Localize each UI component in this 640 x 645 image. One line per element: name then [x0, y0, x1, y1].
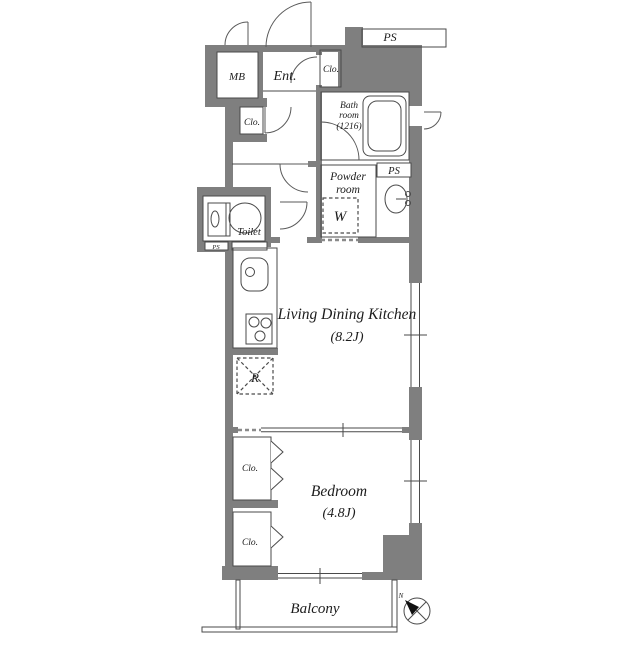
toilet-label: Toilet — [237, 227, 262, 238]
bedroom-label: Bedroom — [311, 483, 367, 500]
wall-bedroom-left-a — [225, 433, 233, 502]
balcony-right-rail — [392, 580, 397, 627]
floorplan-drawing: N MB Ent. Clo. PS Bath room (1216) Clo. … — [0, 0, 640, 640]
hall-closet-door-swing — [265, 107, 291, 133]
pipe-shaft-block — [338, 45, 422, 92]
wall-mb-left — [205, 45, 217, 107]
fridge-label: R — [250, 370, 259, 385]
bath-label-3: (1216) — [336, 121, 361, 132]
mb-label: MB — [228, 71, 245, 83]
wall-ldk-left — [225, 247, 233, 427]
stove-burner-icon — [249, 317, 259, 327]
walls — [197, 27, 422, 580]
closet1-folding-door-icon — [271, 468, 283, 490]
wall-toilet-top — [197, 187, 271, 196]
toilet-tap-icon — [211, 211, 219, 227]
bath-hatch-swing — [424, 112, 441, 129]
mb-door-swing — [225, 22, 248, 45]
ps-small-label: PS — [211, 244, 220, 251]
compass-needle — [405, 600, 419, 615]
wall-bottom-mid — [362, 572, 383, 580]
ldk-door-swing — [280, 202, 307, 229]
wall-niche-box — [232, 242, 267, 250]
closet1-label: Clo. — [242, 464, 258, 474]
kitchen-drain-icon — [246, 268, 255, 277]
ldk-size-label: (8.2J) — [330, 330, 363, 345]
closet2-label: Clo. — [242, 538, 258, 548]
wall-counter-stub — [225, 348, 278, 355]
wall-mb-bottom — [205, 98, 267, 107]
entrance-closet-label: Clo. — [323, 65, 339, 75]
entrance-label: Ent. — [273, 69, 297, 84]
bath-label-2: room — [339, 111, 359, 121]
floorplan-page: N MB Ent. Clo. PS Bath room (1216) Clo. … — [0, 0, 640, 640]
ps-mid-label: PS — [387, 166, 400, 177]
wall-hall-bottom-b — [307, 237, 321, 243]
powder-label-2: room — [336, 184, 360, 196]
ldk-label: Living Dining Kitchen — [277, 306, 417, 323]
hall-upper-door-swing — [280, 164, 308, 192]
balcony-label: Balcony — [290, 601, 339, 617]
wall-divider-left — [225, 427, 238, 433]
washer-label: W — [334, 209, 348, 225]
ps-top-box — [362, 29, 446, 47]
wall-mb-ent-divider — [258, 52, 263, 98]
wall-hall-top-stub — [308, 161, 316, 167]
pillar-bottom-right — [383, 535, 422, 580]
stove-burner-icon — [255, 331, 265, 341]
wall-left-upper — [225, 107, 233, 192]
wall-powder-bottom — [358, 237, 422, 243]
closet2-folding-door-icon — [271, 526, 283, 548]
balcony-bottom-rail — [202, 627, 397, 632]
entrance-door-swing — [266, 2, 311, 47]
wall-toilet-left — [197, 187, 203, 247]
kitchen-counter-icon — [233, 248, 277, 348]
wall-closet-hall-bottom — [225, 134, 267, 142]
ps-top-label: PS — [382, 30, 396, 44]
wall-ps-stub — [345, 27, 363, 47]
closet1-folding-door-icon — [271, 441, 283, 463]
compass-north-label: N — [398, 592, 404, 600]
bedroom-size-label: (4.8J) — [322, 506, 355, 521]
compass-icon: N — [398, 592, 430, 624]
wall-closet-hall-left — [233, 107, 240, 136]
wall-closet-divider — [225, 500, 278, 508]
kitchen-sink-icon — [241, 258, 268, 291]
wall-bedroom-left-b — [225, 508, 233, 572]
hall-closet-label: Clo. — [244, 118, 260, 128]
stove-burner-icon — [261, 318, 271, 328]
powder-label-1: Powder — [329, 171, 366, 183]
balcony-left-rail — [236, 580, 240, 629]
fixtures — [208, 96, 411, 430]
bath-label-1: Bath — [340, 101, 358, 111]
bathtub-inner-icon — [368, 101, 401, 151]
wall-bottom-left — [222, 566, 278, 580]
room-labels: MB Ent. Clo. PS Bath room (1216) Clo. Po… — [211, 30, 416, 617]
wall-divider-right — [402, 427, 422, 433]
